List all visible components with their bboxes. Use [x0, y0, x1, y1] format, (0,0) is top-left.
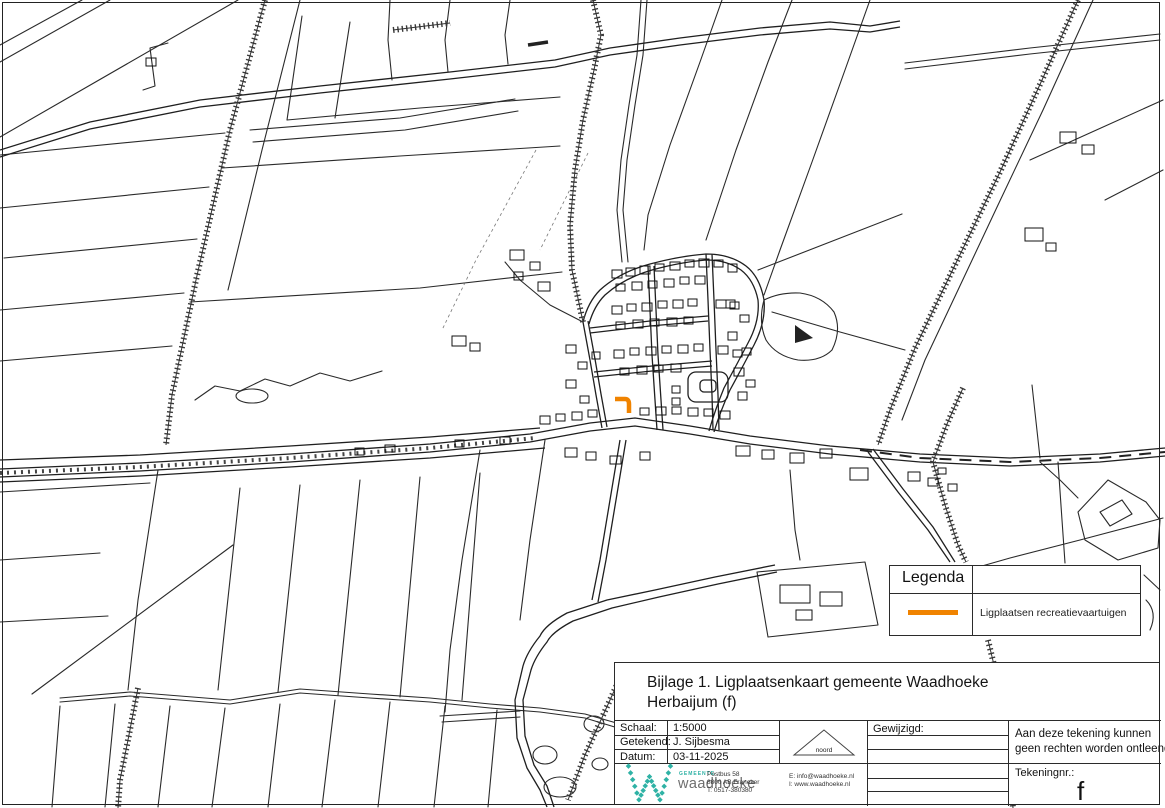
- map-sheet: Legenda Ligplaatsen recreatievaartuigen …: [0, 0, 1165, 808]
- sheet-border: [2, 2, 1160, 805]
